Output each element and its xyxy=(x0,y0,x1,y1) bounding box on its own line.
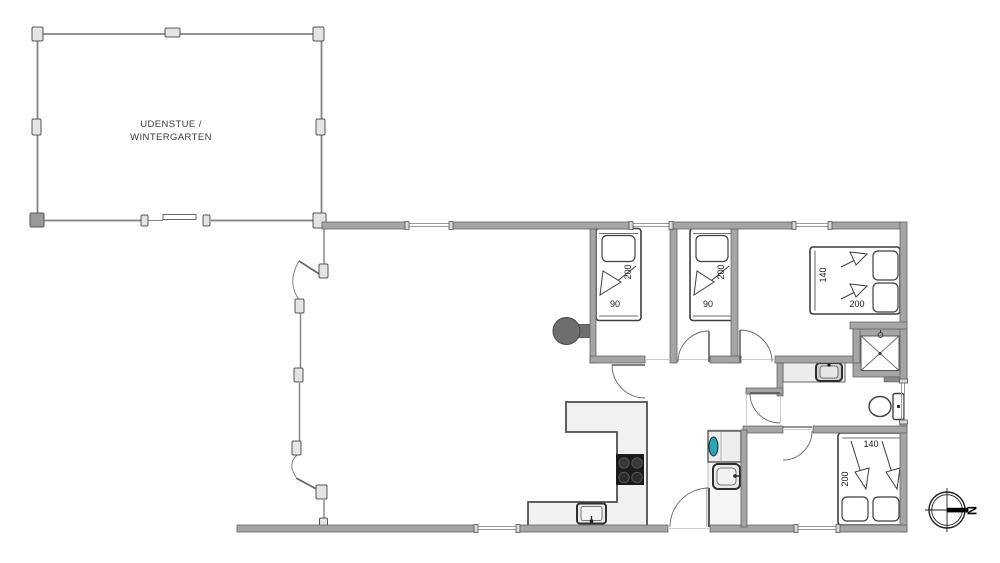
vanity-sink xyxy=(783,361,845,382)
bed3-width-label: 140 xyxy=(818,263,828,287)
toilet xyxy=(869,394,904,420)
bed2-width-label: 90 xyxy=(696,299,720,309)
shower xyxy=(853,329,907,382)
pillow xyxy=(873,497,899,521)
wood-stove xyxy=(553,318,591,345)
compass-rose xyxy=(925,488,969,532)
floor-plan-drawing xyxy=(0,0,1000,563)
bed2-length-label: 200 xyxy=(716,260,726,284)
compass-north-label: N xyxy=(966,499,979,523)
appliance xyxy=(708,431,741,462)
kitchen-counter xyxy=(528,402,647,527)
winter-garden-label-line1: UDENSTUE / xyxy=(91,118,251,131)
bed4-width-label: 140 xyxy=(859,439,883,449)
entrance-door xyxy=(670,488,709,527)
bed4-length-label: 200 xyxy=(840,467,850,491)
pillow xyxy=(873,251,898,280)
bedroom2-door xyxy=(678,331,709,362)
kitchen-sink xyxy=(577,504,606,524)
pillow xyxy=(696,236,728,262)
bed1-length-label: 200 xyxy=(623,260,633,284)
cooktop xyxy=(616,454,644,485)
winter-garden-label-line2: WINTERGARTEN xyxy=(91,131,251,144)
floor-plan: UDENSTUE / WINTERGARTEN 200 90 200 90 14… xyxy=(0,0,1000,563)
glass-facade xyxy=(292,229,328,526)
utility-sink xyxy=(713,464,742,489)
pillow xyxy=(842,497,868,521)
bedroom4-door xyxy=(783,427,812,460)
bed3-length-label: 200 xyxy=(845,299,869,309)
utility-column xyxy=(708,430,742,526)
pillow xyxy=(873,283,898,312)
sliding-door xyxy=(163,215,196,220)
bedroom3-door xyxy=(740,330,772,362)
bathroom-door xyxy=(750,393,780,423)
bed1-width-label: 90 xyxy=(603,299,627,309)
pillow xyxy=(602,236,635,262)
bedroom1-door xyxy=(612,365,645,398)
